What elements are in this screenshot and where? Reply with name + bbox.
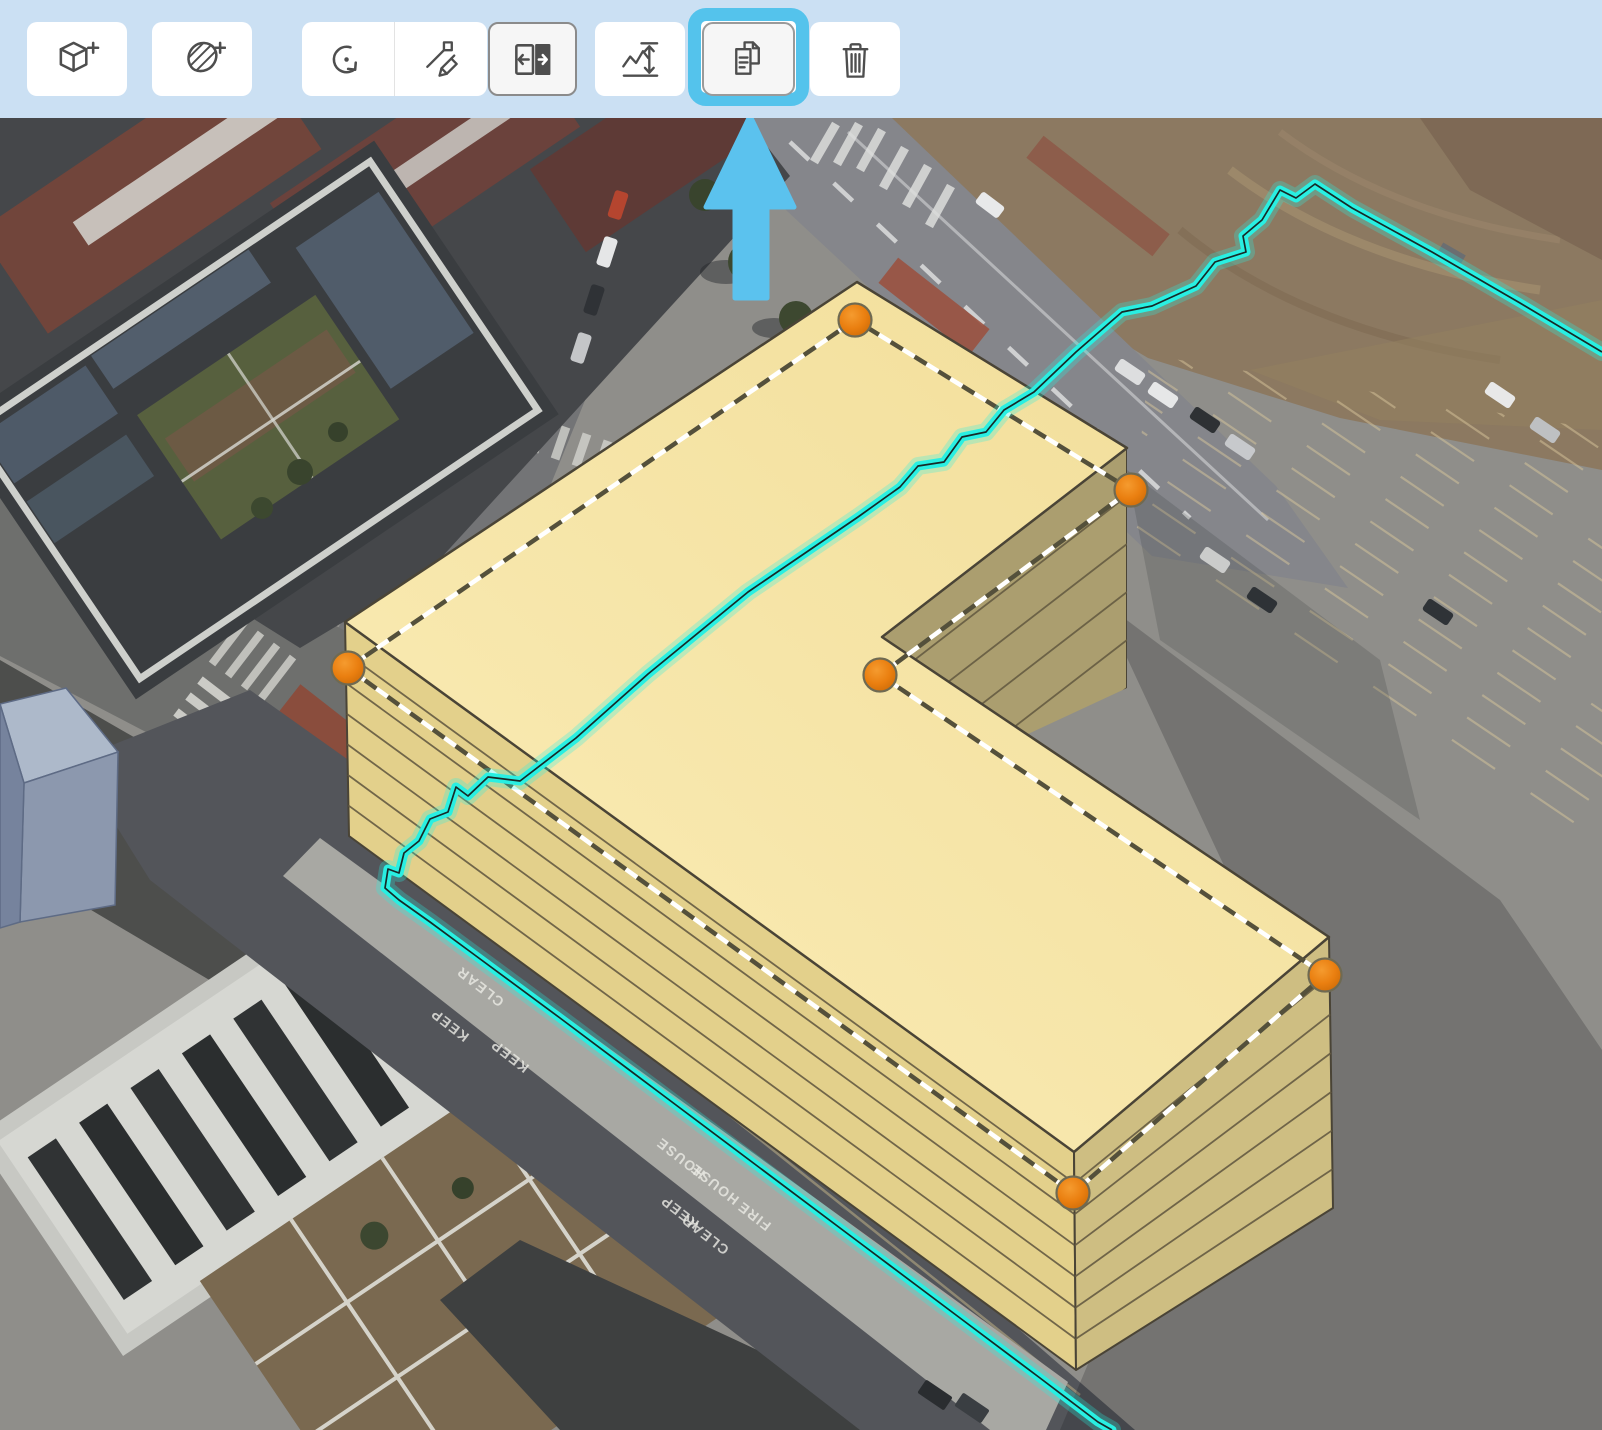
add-box-icon <box>54 36 101 83</box>
offset-walls-button[interactable] <box>488 22 577 96</box>
copy-button[interactable] <box>702 22 795 96</box>
map-viewport[interactable]: CLEARKEEPKEEPHOUSEHOUSEKEEPCLEARFIRE <box>0 0 1602 1430</box>
rotate-icon <box>325 36 372 83</box>
edit-vertices-button[interactable] <box>394 22 487 96</box>
delete-button[interactable] <box>810 22 900 96</box>
vertex-handle[interactable] <box>864 659 897 692</box>
add-polygon-icon <box>179 36 226 83</box>
adjust-height-button[interactable] <box>595 22 685 96</box>
add-polygon-button[interactable] <box>152 22 252 96</box>
delete-icon <box>832 36 879 83</box>
vertex-handle[interactable] <box>839 304 872 337</box>
toolbar <box>0 0 1602 118</box>
adjust-height-icon <box>617 36 664 83</box>
app-window: CLEARKEEPKEEPHOUSEHOUSEKEEPCLEARFIRE <box>0 0 1602 1430</box>
offset-walls-icon <box>509 36 556 83</box>
vertex-handle[interactable] <box>1309 959 1342 992</box>
vertex-handle[interactable] <box>332 652 365 685</box>
vertex-handle[interactable] <box>1115 474 1148 507</box>
edit-vertices-icon <box>418 36 465 83</box>
rotate-button[interactable] <box>302 22 394 96</box>
copy-icon <box>725 36 772 83</box>
add-box-button[interactable] <box>27 22 127 96</box>
vertex-handle[interactable] <box>1057 1177 1090 1210</box>
